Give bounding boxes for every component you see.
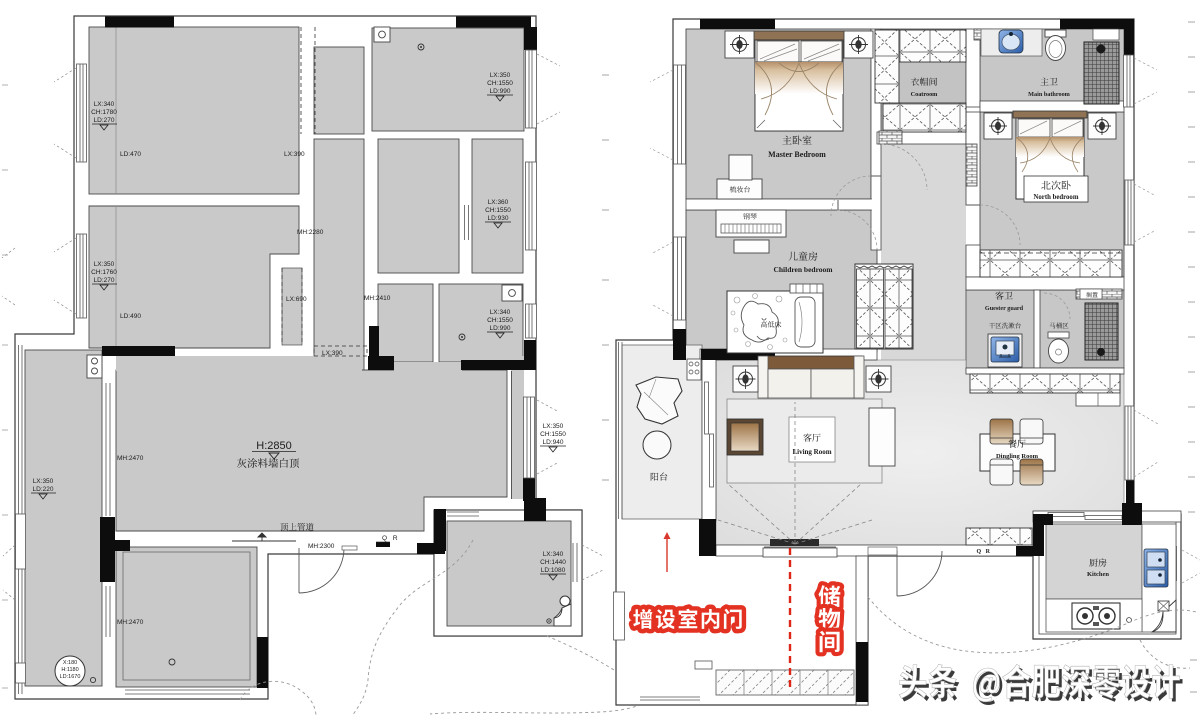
svg-text:LD:1670: LD:1670 xyxy=(60,674,81,680)
svg-text:CH:1550: CH:1550 xyxy=(485,207,511,214)
svg-text:CH:1550: CH:1550 xyxy=(487,317,513,324)
svg-text:LD:1080: LD:1080 xyxy=(541,567,566,574)
svg-text:LX:350: LX:350 xyxy=(33,478,54,485)
svg-text:LD:990: LD:990 xyxy=(490,325,511,332)
svg-text:LD:220: LD:220 xyxy=(33,486,54,493)
svg-text:LX:340: LX:340 xyxy=(490,309,511,316)
svg-text:MH:2280: MH:2280 xyxy=(297,229,324,236)
svg-text:H:1180: H:1180 xyxy=(61,667,78,673)
svg-text:CH:1780: CH:1780 xyxy=(91,109,117,116)
svg-text:Living Room: Living Room xyxy=(792,448,831,456)
svg-text:LD:490: LD:490 xyxy=(120,313,141,320)
svg-text:LX:360: LX:360 xyxy=(488,199,509,206)
svg-text:LX:390: LX:390 xyxy=(284,151,305,158)
svg-text:MH:2410: MH:2410 xyxy=(364,295,391,302)
svg-text:LD:270: LD:270 xyxy=(94,277,115,284)
svg-text:H:2850: H:2850 xyxy=(256,440,291,452)
svg-text:LD:470: LD:470 xyxy=(120,151,141,158)
svg-text:LX:340: LX:340 xyxy=(94,101,115,108)
svg-text:Dingling Room: Dingling Room xyxy=(996,453,1039,460)
svg-text:MH:2300: MH:2300 xyxy=(308,543,335,550)
svg-text:Main bathroom: Main bathroom xyxy=(1028,91,1070,98)
svg-text:Coatroom: Coatroom xyxy=(911,91,939,98)
svg-text:LX:350: LX:350 xyxy=(543,423,564,430)
svg-text:MH:2470: MH:2470 xyxy=(117,619,144,626)
svg-text:Guester guard: Guester guard xyxy=(985,305,1024,312)
svg-text:LD:990: LD:990 xyxy=(490,88,511,95)
svg-text:CH:1440: CH:1440 xyxy=(540,559,566,566)
svg-text:CH:1550: CH:1550 xyxy=(540,431,566,438)
svg-text:Q R: Q R xyxy=(977,549,992,555)
svg-text:X:180: X:180 xyxy=(63,660,77,666)
svg-text:LD:940: LD:940 xyxy=(543,439,564,446)
svg-text:LX:350: LX:350 xyxy=(490,72,511,79)
svg-text:Children bedroom: Children bedroom xyxy=(773,265,833,274)
svg-text:LD:270: LD:270 xyxy=(94,117,115,124)
svg-text:CH:1550: CH:1550 xyxy=(487,80,513,87)
svg-text:LX:350: LX:350 xyxy=(94,261,115,268)
svg-text:Master Bedroom: Master Bedroom xyxy=(768,150,826,159)
svg-text:LD:930: LD:930 xyxy=(488,215,509,222)
svg-text:LX:340: LX:340 xyxy=(543,551,564,558)
svg-text:Q R: Q R xyxy=(382,535,400,542)
svg-text:LX:690: LX:690 xyxy=(286,296,307,303)
svg-text:LX:390: LX:390 xyxy=(322,350,343,357)
svg-text:North bedroom: North bedroom xyxy=(1034,194,1079,201)
svg-text:CH:1760: CH:1760 xyxy=(91,269,117,276)
svg-text:MH:2470: MH:2470 xyxy=(117,455,144,462)
svg-text:Kitchen: Kitchen xyxy=(1087,571,1109,578)
